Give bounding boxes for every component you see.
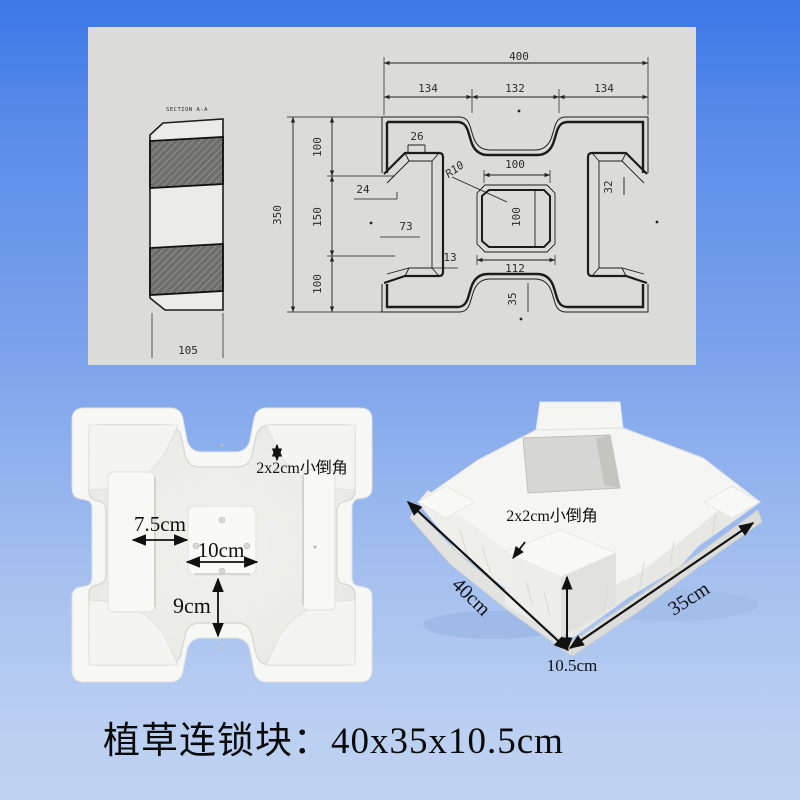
chamfer-note-persp: 2x2cm小倒角 — [506, 507, 598, 525]
dim-150: 150 — [311, 207, 324, 227]
left-island — [384, 145, 443, 283]
svg-text:24: 24 — [356, 183, 370, 196]
right-island — [588, 153, 647, 283]
mold-top-view-photo: 2x2cm小倒角 7.5cm 10cm 9cm — [58, 393, 402, 693]
dim-7-5cm: 7.5cm — [134, 512, 186, 536]
hatch-band-bottom — [150, 244, 223, 295]
dim-350-label: 350 — [271, 205, 284, 225]
svg-text:13: 13 — [443, 251, 456, 264]
dim-112: 112 — [477, 255, 555, 275]
dim-10-5cm: 10.5cm — [547, 656, 598, 675]
left-island-boss — [108, 472, 155, 612]
product-image: SECTION A-A 105 — [0, 0, 800, 800]
dim-100-bot: 100 — [311, 274, 324, 294]
dim-73: 73 — [380, 220, 420, 237]
dim-r10: R10 — [443, 158, 507, 202]
dim-9cm: 9cm — [173, 593, 211, 618]
dim-350: 350 — [271, 117, 382, 312]
svg-text:112: 112 — [505, 262, 525, 275]
dim-center-100-top: 100 — [484, 158, 550, 183]
cad-drawing: SECTION A-A 105 — [88, 27, 696, 365]
dim-10cm: 10cm — [198, 538, 245, 562]
dim-32: 32 — [602, 180, 615, 193]
chamfer-note: 2x2cm小倒角 — [256, 459, 348, 477]
right-island-boss — [303, 470, 335, 610]
side-section-view: SECTION A-A 105 — [150, 107, 223, 358]
dim-center-100-vert: 100 — [510, 207, 523, 227]
technical-drawing-panel: SECTION A-A 105 — [88, 27, 696, 365]
dim-105-label: 105 — [178, 344, 198, 357]
dim-134-left: 134 — [418, 82, 438, 95]
center-hole — [523, 435, 620, 493]
dim-35: 35 — [506, 283, 528, 312]
svg-text:R10: R10 — [443, 158, 467, 180]
dim-132: 132 — [505, 82, 525, 95]
product-caption: 植草连锁块：40x35x10.5cm — [103, 710, 564, 764]
mold-perspective-photo: 2x2cm小倒角 40cm 35cm 10.5cm — [398, 390, 794, 690]
svg-text:35: 35 — [506, 292, 519, 305]
mold-body-perspective — [410, 402, 762, 656]
dim-top-chain: 134 132 134 — [384, 82, 648, 113]
svg-text:100: 100 — [505, 158, 525, 171]
plan-view: 400 134 132 134 350 — [271, 50, 658, 320]
dim-100-top: 100 — [311, 137, 324, 157]
dim-134-right: 134 — [594, 82, 614, 95]
svg-text:73: 73 — [399, 220, 412, 233]
section-label: SECTION A-A — [166, 107, 208, 113]
hatch-band-top — [150, 137, 223, 188]
dim-24: 24 — [354, 183, 397, 199]
dim-400-label: 400 — [509, 50, 529, 63]
dim-26: 26 — [410, 130, 423, 143]
